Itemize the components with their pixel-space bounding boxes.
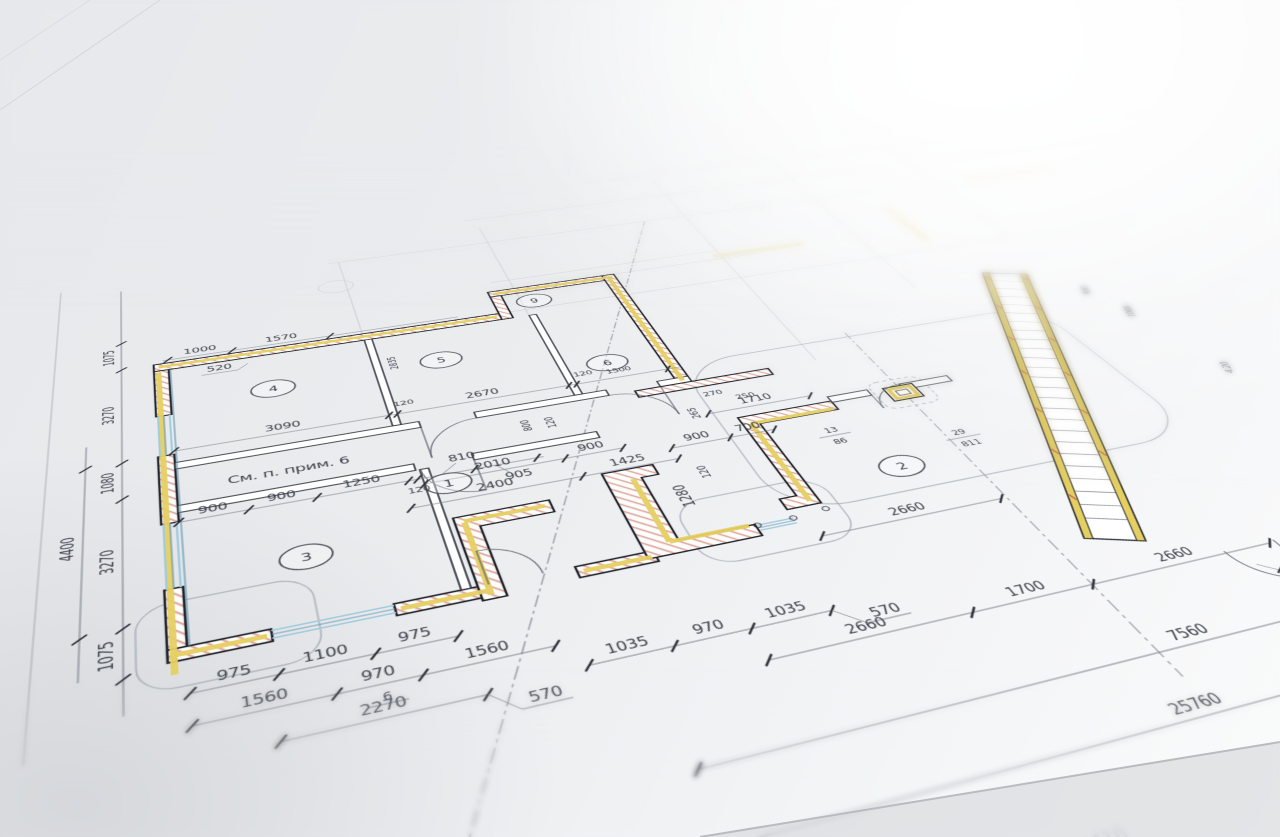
dim-label: 120	[541, 416, 560, 429]
room-number: 4	[268, 385, 279, 394]
dim-label: 1000	[1120, 305, 1138, 317]
dim-label: 2660	[1151, 545, 1197, 564]
dim-label: 900	[1078, 286, 1094, 294]
paper-edge-top-left	[0, 0, 160, 110]
dim-label: 1100	[302, 643, 350, 666]
dim-label: 811	[958, 438, 984, 449]
dim-label: 1035	[603, 634, 651, 657]
dim-label: 1075	[96, 639, 119, 673]
dim-label: 1000	[183, 344, 217, 356]
dim-label: 2270	[358, 694, 408, 720]
dim-label: 2835	[385, 356, 402, 370]
dim-label: 900	[681, 430, 712, 443]
dim-label: 3090	[264, 420, 301, 434]
dim-label: 6410	[1075, 825, 1135, 837]
dim-label: 2400	[475, 477, 516, 494]
dim-label: 2670	[464, 387, 500, 400]
dim-label: 4.20	[1217, 361, 1237, 373]
dim-label: 25760	[1164, 691, 1227, 719]
dim-label: 120	[572, 369, 595, 378]
floorplan-svg: 4 5 9 6 1 3 2 1000 1570 520 3090 120 267…	[0, 11, 1280, 837]
dim-label: 3270	[98, 548, 119, 576]
dim-label: 1075	[102, 349, 118, 367]
dim-label: 970	[690, 618, 728, 638]
dim-label: 120	[693, 464, 714, 479]
vestibule-wall-right	[722, 401, 906, 510]
floorplan-perspective-wrap: 4 5 9 6 1 3 2 1000 1570 520 3090 120 267…	[0, 11, 1280, 837]
dim-label: 1570	[264, 332, 297, 344]
dim-label: 1560	[463, 639, 511, 662]
dim-label: 270	[701, 388, 725, 398]
dim-label: 120	[392, 398, 415, 408]
dim-label: 2660	[886, 501, 929, 519]
room-number: 3	[300, 551, 313, 565]
dim-label: 1700	[1002, 579, 1049, 600]
paper-edge-top-left-2	[0, 0, 90, 60]
dim-label: 800	[517, 419, 535, 432]
blueprint-photo: 4 5 9 6 1 3 2 1000 1570 520 3090 120 267…	[0, 0, 1280, 837]
dim-label: 29	[949, 427, 969, 437]
dim-label: 1080	[99, 471, 118, 495]
dim-label: 1280	[670, 483, 700, 507]
dim-label: 570	[526, 684, 565, 707]
dim-label: 265	[685, 407, 705, 420]
dim-label: 1560	[240, 686, 289, 712]
dim-label: 3270	[101, 406, 119, 426]
dim-label: 2660	[842, 615, 891, 637]
staircase	[983, 273, 1146, 541]
dim-label: 13	[822, 426, 841, 435]
faint-background-lines	[296, 109, 1280, 437]
dim-label: 4400	[58, 536, 79, 563]
dim-label: 520	[206, 363, 232, 374]
dim-label: 86	[831, 436, 850, 446]
dim-label: 1035	[762, 600, 809, 622]
